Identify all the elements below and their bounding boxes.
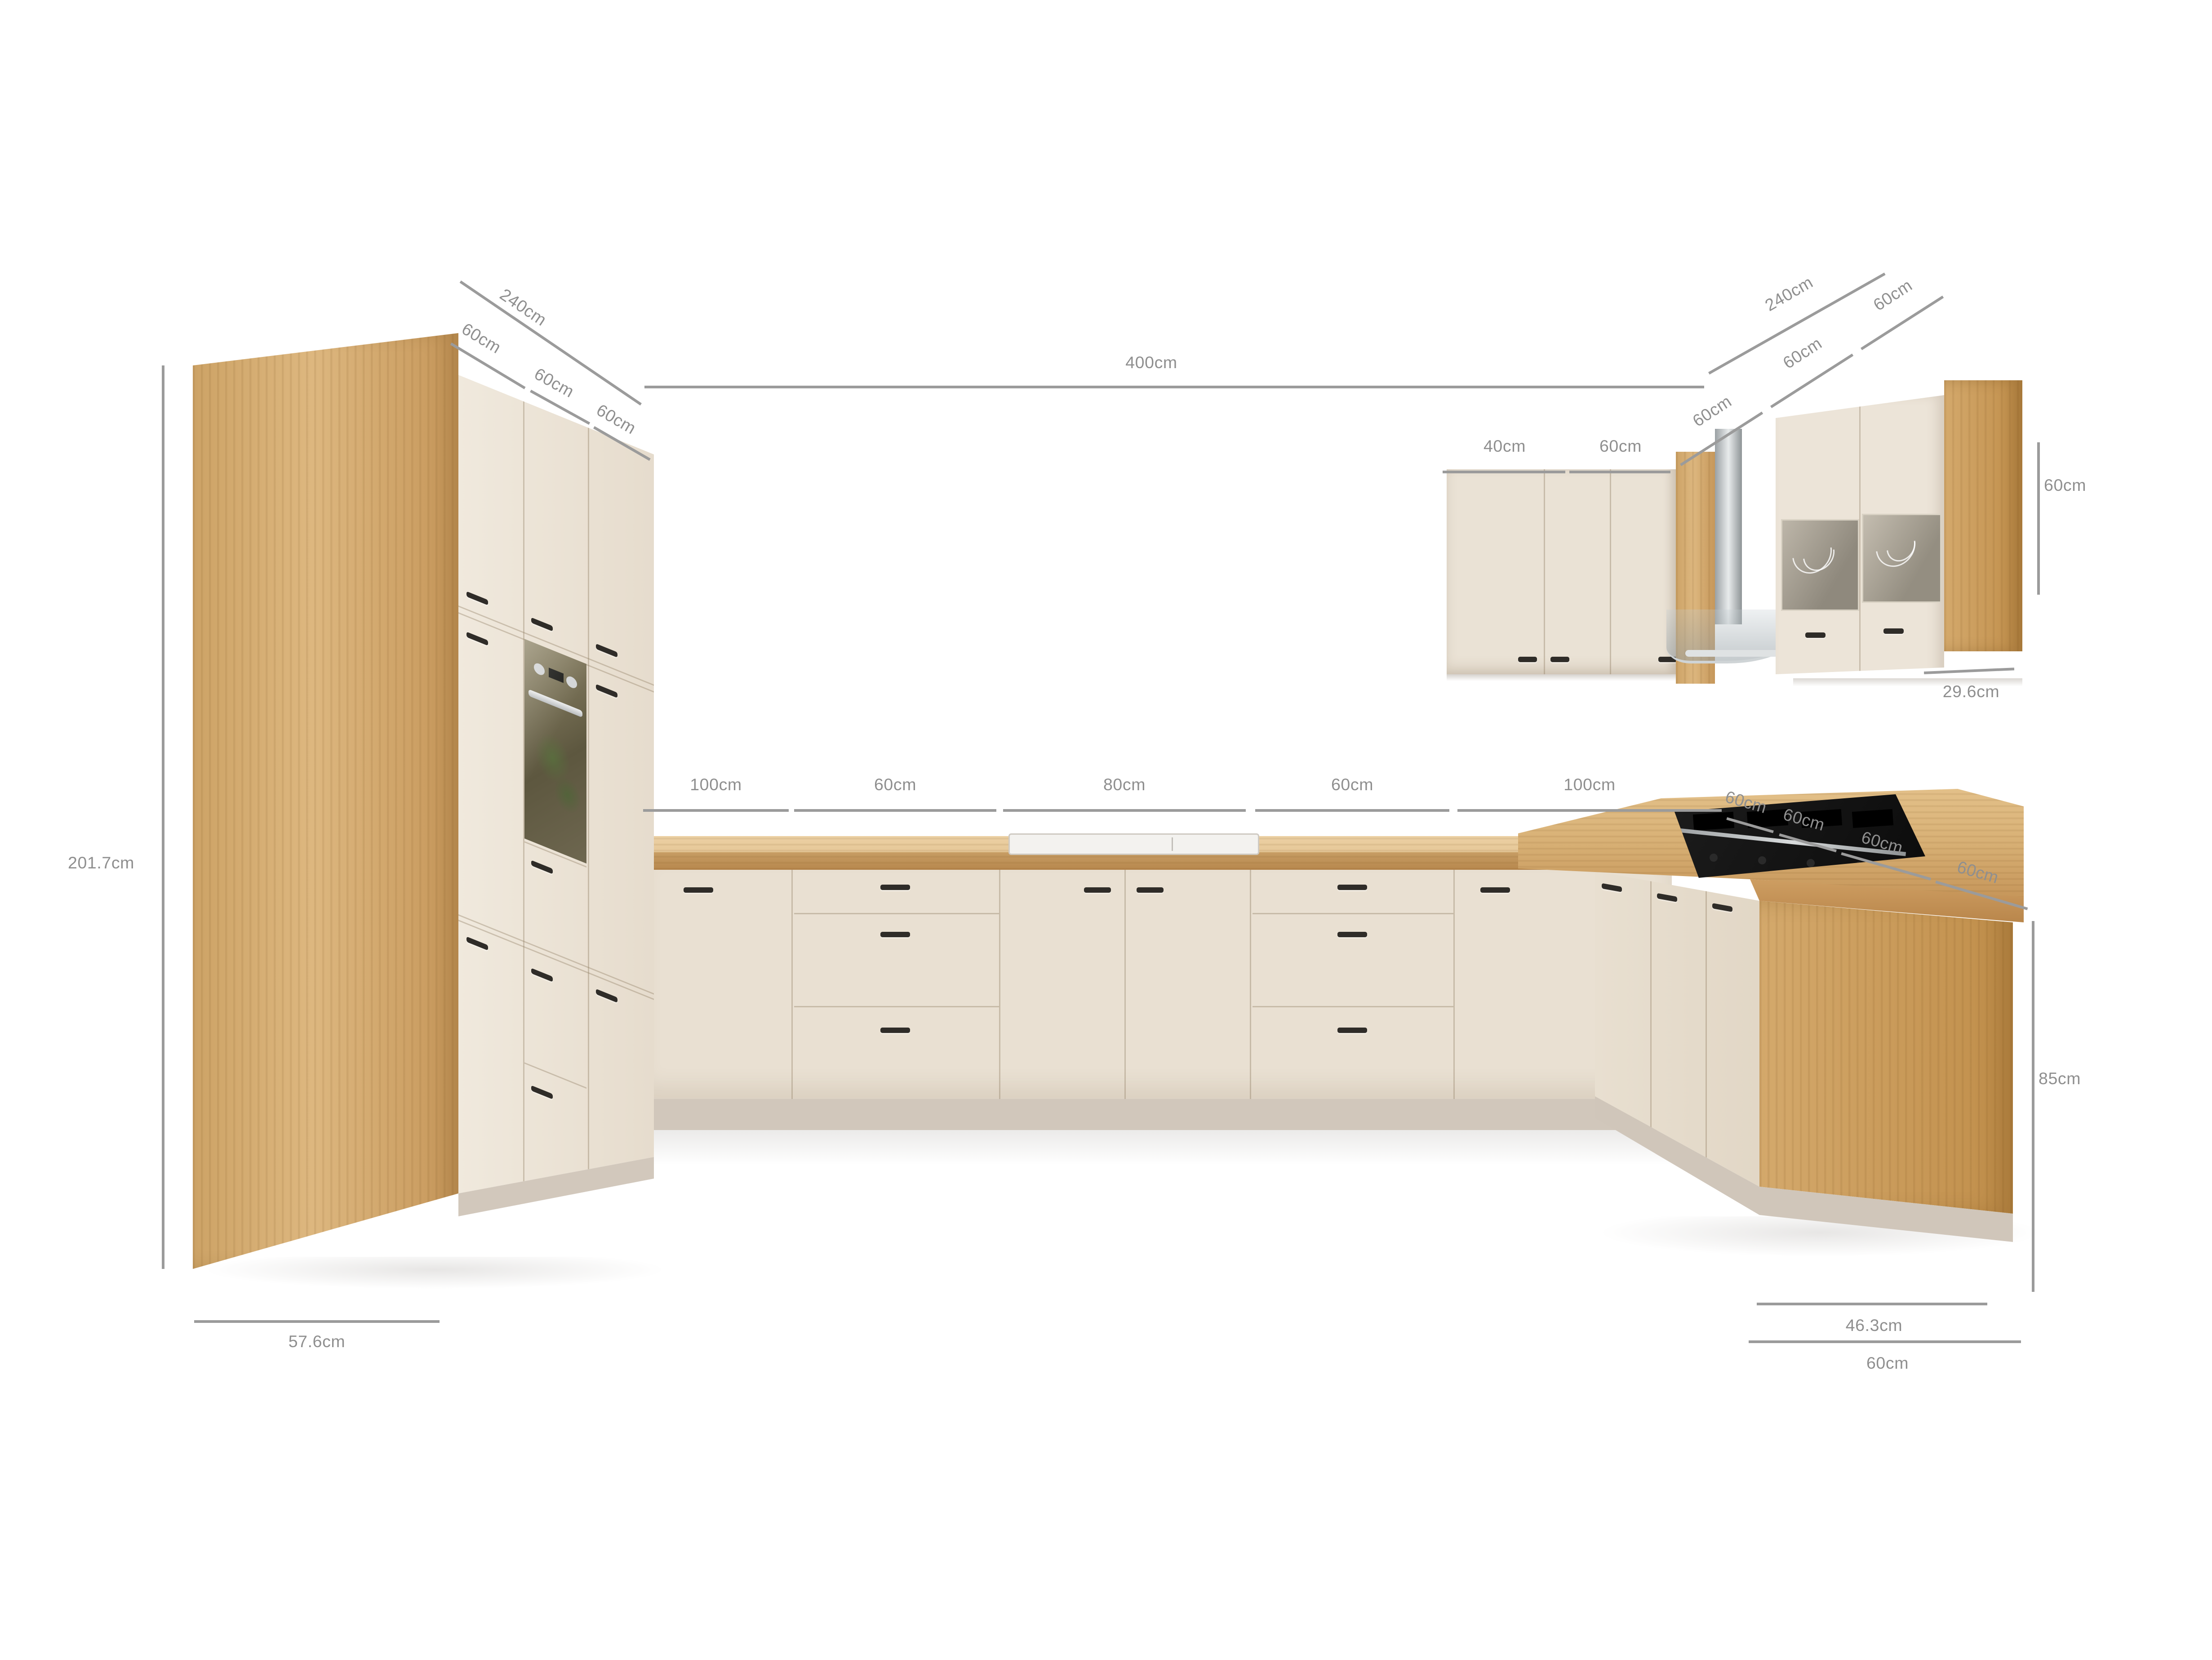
dim-label-right-upper-seg: 60cm <box>1870 276 1916 315</box>
drawer-line <box>794 913 999 914</box>
dim-line-back-seg <box>794 809 996 811</box>
glass-cabinet-handle <box>1883 628 1904 633</box>
tall-drawer-handle <box>531 968 553 981</box>
wall-cabinet-handle <box>1550 657 1569 662</box>
drawer-handle <box>1337 1028 1367 1032</box>
dim-line-wall-seg <box>1569 471 1670 473</box>
cabinet-divider <box>1250 870 1251 1099</box>
base-door-handle <box>684 887 713 892</box>
dim-label-back-seg: 60cm <box>874 775 916 794</box>
dim-line-left-height <box>162 365 164 1269</box>
cabinet-divider <box>1453 870 1455 1099</box>
tall-divider <box>588 427 589 1250</box>
tall-door-handle <box>466 936 488 950</box>
dim-line-back-seg <box>1457 809 1722 811</box>
dim-label-left-height: 201.7cm <box>68 854 134 872</box>
dim-line-back-total <box>644 386 1704 388</box>
dim-line-back-seg <box>643 809 789 811</box>
base-door-handle <box>1084 887 1111 892</box>
dim-label-counter-height: 85cm <box>2039 1069 2081 1088</box>
tall-unit-front-face <box>458 375 654 1277</box>
kitchen-dimension-render: 240cm 60cm 60cm 60cm 201.7cm 57.6cm 400c… <box>0 0 2212 1660</box>
dim-label-back-seg: 100cm <box>1564 775 1616 794</box>
wall-cabinet-left-group-shadow <box>1447 674 1676 681</box>
tall-door-handle <box>596 989 617 1002</box>
peninsula-front-face <box>1595 871 1759 1219</box>
dim-line-wall-depth <box>1924 668 2014 674</box>
hob-knob <box>1758 856 1766 864</box>
drawer-line <box>794 1006 999 1007</box>
tall-drawer-handle <box>531 860 553 873</box>
tall-door-line <box>458 920 654 1000</box>
base-door-handle <box>1480 887 1510 892</box>
tall-unit-wood-side-panel <box>193 333 458 1269</box>
dim-label-left-depth: 57.6cm <box>289 1332 346 1351</box>
tall-unit-front <box>458 375 654 1197</box>
tall-drawer-handle <box>531 1085 553 1099</box>
sink <box>1008 833 1259 855</box>
dim-label-right-total: 240cm <box>1762 273 1816 315</box>
range-hood-chimney <box>1715 429 1742 624</box>
tall-door-handle <box>531 617 553 631</box>
dim-label-right-upper-seg: 60cm <box>1689 392 1735 431</box>
wall-cabinet-divider <box>1544 469 1545 674</box>
glass-cabinet-handle <box>1805 632 1826 637</box>
tall-door-handle <box>466 591 488 605</box>
floor-shadow-back-run <box>647 1130 1672 1165</box>
tall-door-line <box>458 914 654 995</box>
peninsula-door-handle <box>1602 883 1622 892</box>
drawer-handle <box>880 885 910 890</box>
dim-line-wall-height <box>2037 442 2039 595</box>
drawer-line <box>1253 1006 1453 1007</box>
drawer-handle <box>1337 932 1367 937</box>
dim-label-back-seg: 80cm <box>1103 775 1146 794</box>
dim-label-wall-seg: 40cm <box>1484 437 1526 456</box>
peninsula-door-handle <box>1657 893 1677 902</box>
dim-line-back-seg <box>1003 809 1246 811</box>
hob-grate <box>1852 809 1893 828</box>
dim-label-base-depth: 60cm <box>1866 1354 1909 1373</box>
dim-line-left-depth <box>194 1320 440 1322</box>
dim-label-back-seg: 60cm <box>1331 775 1373 794</box>
cabinet-divider <box>791 870 793 1099</box>
peninsula-wood-end-panel <box>1759 901 2013 1214</box>
dim-label-wall-depth: 29.6cm <box>1943 682 2000 701</box>
wall-cabinet-divider <box>1610 469 1611 674</box>
dim-line-wall-seg <box>1443 471 1565 473</box>
dim-line-base-depth <box>1749 1340 2021 1343</box>
peninsula-door-handle <box>1712 903 1732 912</box>
hob-knob <box>1807 859 1815 867</box>
drawer-handle <box>880 1028 910 1032</box>
dim-label-left-seg: 60cm <box>593 401 640 438</box>
drawer-line <box>1253 913 1453 914</box>
back-run-fronts <box>643 870 1672 1099</box>
base-door-handle <box>1137 887 1164 892</box>
glass-cabinet-divider <box>1859 395 1861 672</box>
wall-cabinet-handle <box>1518 657 1537 662</box>
sink-divider <box>1172 837 1173 851</box>
cabinet-divider <box>999 870 1000 1099</box>
dim-line-back-seg <box>1255 809 1449 811</box>
oven-glass-sheen <box>524 639 586 863</box>
drawer-handle <box>1337 885 1367 890</box>
oven <box>524 639 586 863</box>
drawer-handle <box>880 932 910 937</box>
dim-line-counter-height <box>2032 921 2034 1292</box>
dim-label-back-seg: 100cm <box>690 775 742 794</box>
tall-door-handle <box>596 644 617 657</box>
range-hood-lamp-strip <box>1685 650 1780 657</box>
hob-knob <box>1710 854 1718 862</box>
dim-label-wall-height: 60cm <box>2044 476 2086 495</box>
wall-cabinet-left-group <box>1447 469 1676 674</box>
dim-label-counter-depth: 46.3cm <box>1846 1316 1903 1335</box>
dim-label-wall-seg: 60cm <box>1599 437 1642 456</box>
glass-door <box>1781 519 1859 611</box>
glass-door <box>1862 514 1941 603</box>
dim-line-counter-depth <box>1757 1303 1987 1305</box>
cabinet-divider <box>1124 870 1126 1099</box>
tall-drawer-line <box>524 1062 586 1089</box>
dim-label-right-upper-seg: 60cm <box>1780 334 1826 373</box>
glass-wall-cabinet-group <box>1776 395 1944 684</box>
back-run-plinth <box>651 1099 1666 1130</box>
wall-wood-column <box>1944 380 2022 651</box>
tall-door-handle <box>596 684 617 698</box>
floor-shadow-tall-unit <box>202 1257 667 1289</box>
dim-label-back-total: 400cm <box>1125 353 1177 372</box>
tall-door-handle <box>466 632 488 645</box>
hob-grate <box>1693 812 1734 831</box>
